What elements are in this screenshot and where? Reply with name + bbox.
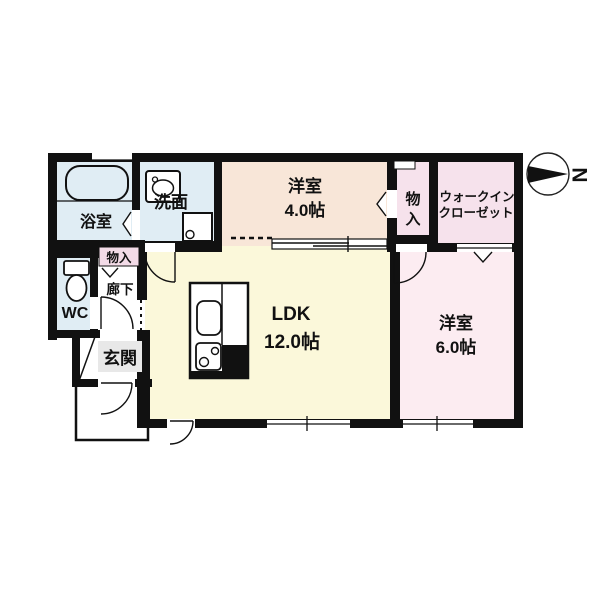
wall-entrance-west <box>72 330 80 387</box>
toilet-tank-icon <box>64 261 89 275</box>
compass-letter: N <box>567 167 590 182</box>
label-ldk: LDK <box>271 304 310 325</box>
opening-washroom-door <box>145 243 175 252</box>
wall-outer-right <box>514 153 523 428</box>
label-washroom: 洗面 <box>154 192 188 212</box>
stove-burner-icon-1 <box>212 348 219 355</box>
kitchen-base-wall <box>190 371 248 378</box>
label-wic-1: ウォークイン <box>439 190 514 204</box>
label-western6-size: 6.0帖 <box>436 337 477 357</box>
opening-western6-door <box>396 244 427 252</box>
floorplan-canvas: 浴室 洗面 洋室 4.0帖 物 入 ウォークイン クローゼット WC 物入 廊下… <box>0 0 600 600</box>
opening-bath-door <box>132 210 140 240</box>
label-bathroom: 浴室 <box>80 212 112 231</box>
label-storage-hall: 物入 <box>106 250 132 265</box>
wall-ldk-western6 <box>390 250 400 423</box>
kitchen-sink-icon <box>197 301 221 335</box>
room-bathroom-floor <box>53 158 136 246</box>
stove-icon <box>196 343 221 370</box>
window-bath-north <box>92 153 132 160</box>
compass-north-icon: N <box>527 153 590 195</box>
opening-storage-top <box>387 190 397 218</box>
label-western4: 洋室 <box>288 176 322 196</box>
label-storage-top-2: 入 <box>405 211 420 228</box>
label-ldk-size: 12.0帖 <box>264 330 320 353</box>
label-wic-2: クローゼット <box>438 205 513 220</box>
window-storage-north <box>394 161 415 169</box>
label-storage-top-1: 物 <box>405 190 420 208</box>
wall-washroom-western4 <box>214 162 222 252</box>
sliding-door-western4 <box>272 239 387 249</box>
label-western4-size: 4.0帖 <box>285 200 326 220</box>
toilet-bowl-icon <box>67 275 87 301</box>
stove-burner-icon-2 <box>200 358 209 367</box>
label-hallway: 廊下 <box>107 281 134 297</box>
floorplan-drawing: 浴室 洗面 洋室 4.0帖 物 入 ウォークイン クローゼット WC 物入 廊下… <box>0 0 600 600</box>
opening-wc-door <box>90 297 98 329</box>
label-wc: WC <box>62 305 89 322</box>
wall-storage-wic <box>429 162 438 244</box>
room-western6-floor <box>396 248 518 421</box>
label-entrance: 玄関 <box>103 348 137 368</box>
label-western6: 洋室 <box>439 313 473 333</box>
